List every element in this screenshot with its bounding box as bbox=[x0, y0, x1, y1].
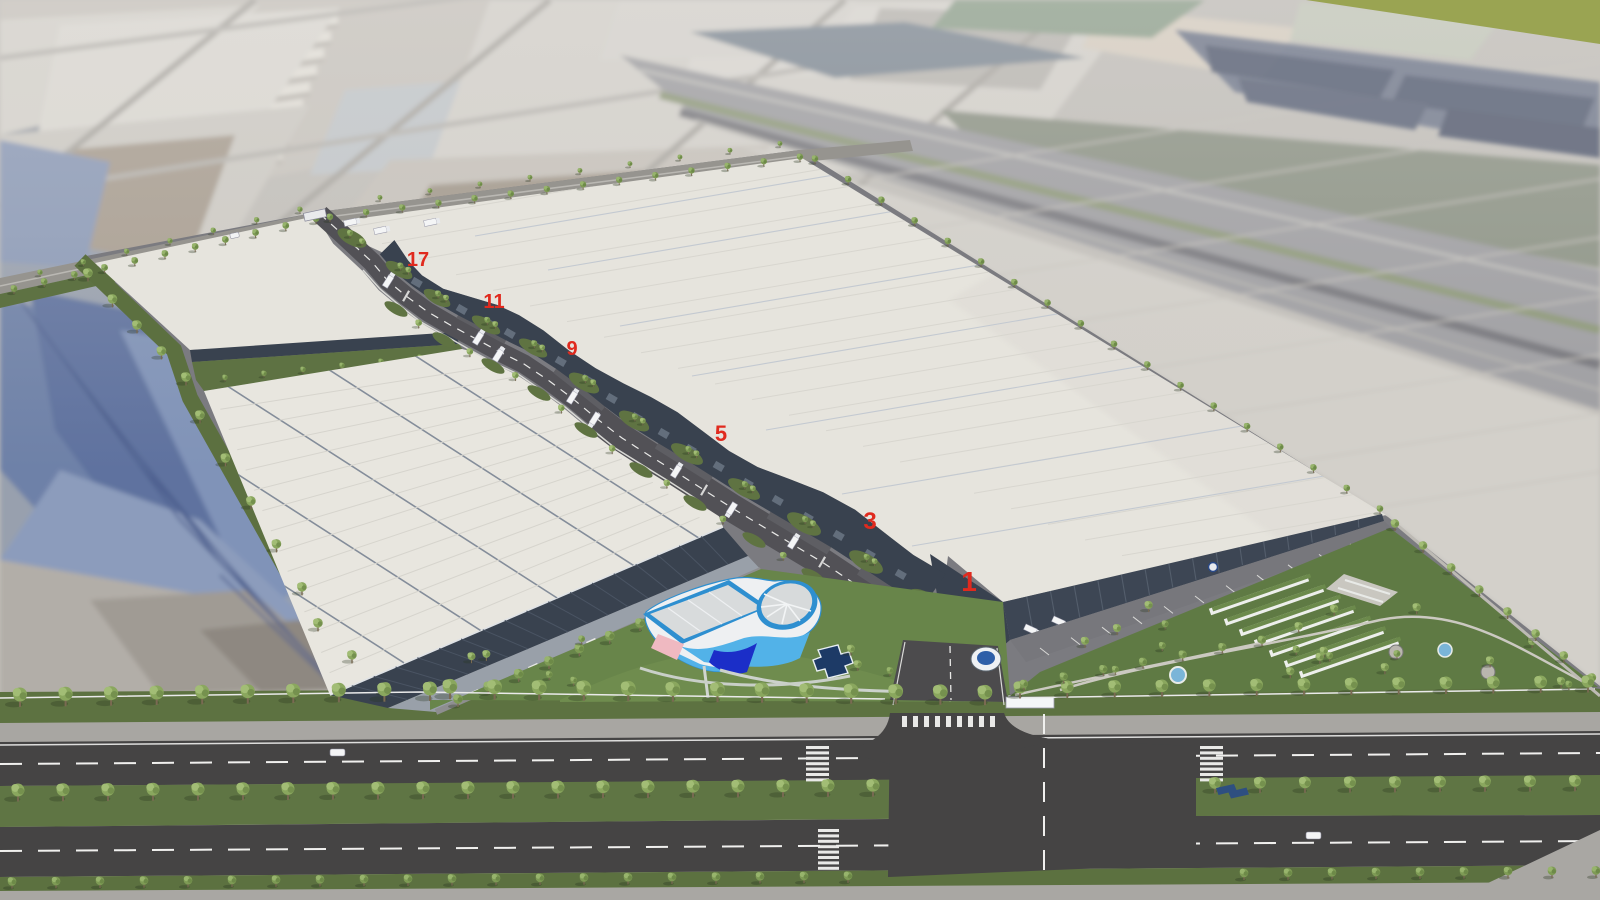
svg-text:5: 5 bbox=[715, 421, 727, 446]
svg-text:3: 3 bbox=[863, 508, 876, 535]
svg-text:1: 1 bbox=[961, 566, 977, 597]
svg-text:17: 17 bbox=[407, 249, 429, 271]
svg-text:9: 9 bbox=[566, 338, 577, 360]
svg-text:11: 11 bbox=[483, 291, 504, 313]
